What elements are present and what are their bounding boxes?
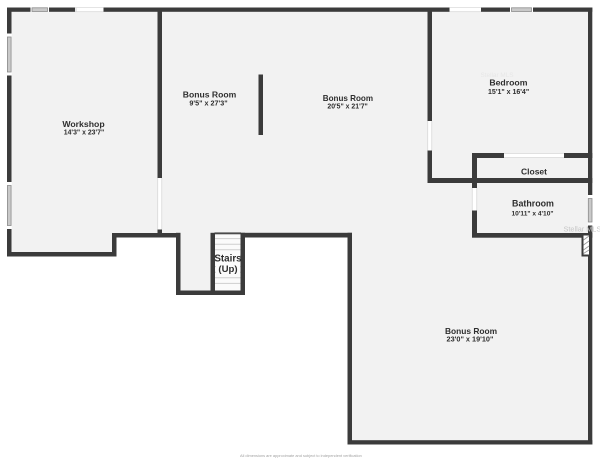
svg-text:9'5" x 27'3": 9'5" x 27'3" bbox=[189, 99, 227, 108]
svg-text:Bedroom: Bedroom bbox=[489, 78, 527, 88]
svg-text:Closet: Closet bbox=[521, 167, 547, 177]
svg-text:(Up): (Up) bbox=[218, 264, 237, 275]
svg-text:Stellar MLS: Stellar MLS bbox=[564, 224, 600, 233]
svg-text:Bathroom: Bathroom bbox=[512, 198, 554, 208]
svg-text:Bonus Room: Bonus Room bbox=[323, 94, 373, 103]
svg-text:10'11" x 4'10": 10'11" x 4'10" bbox=[511, 211, 553, 218]
svg-text:Workshop: Workshop bbox=[62, 119, 104, 129]
svg-text:15'1" x 16'4": 15'1" x 16'4" bbox=[488, 89, 529, 96]
svg-text:23'0" x 19'10": 23'0" x 19'10" bbox=[447, 335, 494, 344]
svg-text:Stairs: Stairs bbox=[214, 254, 242, 265]
svg-text:14'3" x 23'7": 14'3" x 23'7" bbox=[64, 130, 104, 137]
svg-text:Stellar MLS: Stellar MLS bbox=[480, 72, 513, 79]
svg-text:All dimensions are approximate: All dimensions are approximate and subje… bbox=[240, 453, 362, 458]
svg-text:20'5" x 21'7": 20'5" x 21'7" bbox=[327, 104, 367, 111]
